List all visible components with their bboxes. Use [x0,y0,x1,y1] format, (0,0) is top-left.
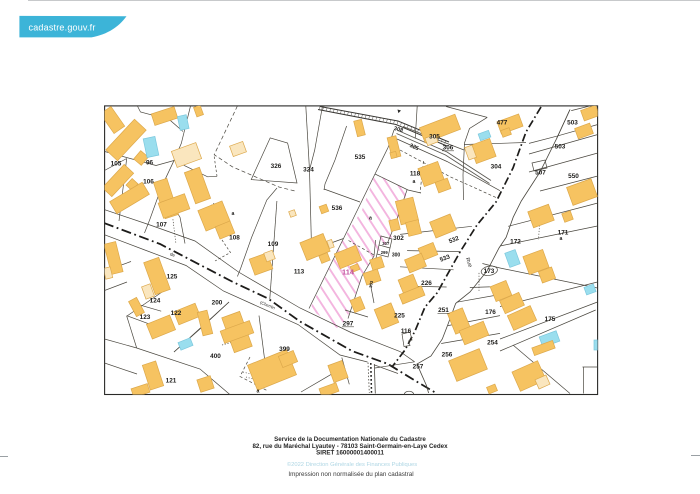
svg-text:324: 324 [303,167,314,174]
svg-text:a: a [257,389,260,395]
svg-text:a: a [560,236,563,242]
svg-text:cadastre.gouv.fr: cadastre.gouv.fr [29,23,96,33]
svg-text:106: 106 [143,179,154,186]
svg-text:176: 176 [485,309,496,316]
svg-text:477: 477 [497,120,508,127]
svg-text:300: 300 [392,253,401,259]
svg-text:536: 536 [332,205,343,212]
svg-text:307: 307 [382,241,390,246]
svg-text:118: 118 [410,171,421,178]
svg-text:SIRET 16000001400011: SIRET 16000001400011 [316,450,384,457]
svg-text:123: 123 [140,314,151,321]
svg-text:114: 114 [342,268,355,277]
svg-text:304: 304 [491,164,502,171]
svg-text:257: 257 [413,364,424,371]
svg-text:503: 503 [567,120,578,127]
svg-text:306: 306 [443,145,454,152]
svg-text:305: 305 [429,134,440,141]
svg-text:535: 535 [355,154,366,161]
svg-text:108: 108 [229,235,240,242]
svg-text:105: 105 [111,161,122,168]
svg-text:de: de [169,251,176,258]
svg-text:Rue: Rue [464,257,473,268]
svg-text:a: a [413,179,416,185]
svg-text:125: 125 [167,274,178,281]
svg-text:173: 173 [484,268,495,275]
svg-text:Impression non normalisée du p: Impression non normalisée du plan cadast… [288,471,413,478]
svg-text:308: 308 [393,126,404,134]
svg-text:Service de la Documentation Na: Service de la Documentation Nationale du… [274,436,426,443]
svg-text:325: 325 [408,143,419,152]
svg-text:96: 96 [146,160,154,167]
svg-text:124: 124 [150,298,161,305]
svg-text:550: 550 [568,173,579,180]
svg-text:251: 251 [438,307,449,314]
svg-text:116: 116 [401,328,412,335]
svg-text:302: 302 [393,235,404,242]
svg-text:225: 225 [394,313,405,320]
svg-text:299: 299 [381,250,389,255]
svg-text:172: 172 [510,239,521,246]
svg-text:503: 503 [555,144,566,151]
svg-text:©2022 Direction Générale des F: ©2022 Direction Générale des Finances Pu… [287,461,417,468]
svg-text:109: 109 [268,241,279,248]
svg-text:532: 532 [448,235,461,246]
svg-text:400: 400 [210,353,221,360]
svg-text:326: 326 [271,163,282,170]
svg-text:(Chemin: (Chemin [259,300,276,311]
svg-text:121: 121 [166,378,177,385]
svg-text:297: 297 [343,321,354,328]
svg-text:226: 226 [421,280,432,287]
svg-text:507: 507 [535,170,546,177]
svg-text:256: 256 [442,352,453,359]
svg-text:533: 533 [439,253,452,264]
svg-text:a: a [369,216,372,222]
svg-text:399: 399 [279,346,290,353]
svg-text:107: 107 [156,222,167,229]
svg-text:200: 200 [212,300,223,307]
svg-text:122: 122 [171,310,182,317]
svg-text:254: 254 [487,340,498,347]
svg-text:a: a [232,211,235,217]
svg-text:175: 175 [545,316,556,323]
svg-text:113: 113 [294,269,305,276]
